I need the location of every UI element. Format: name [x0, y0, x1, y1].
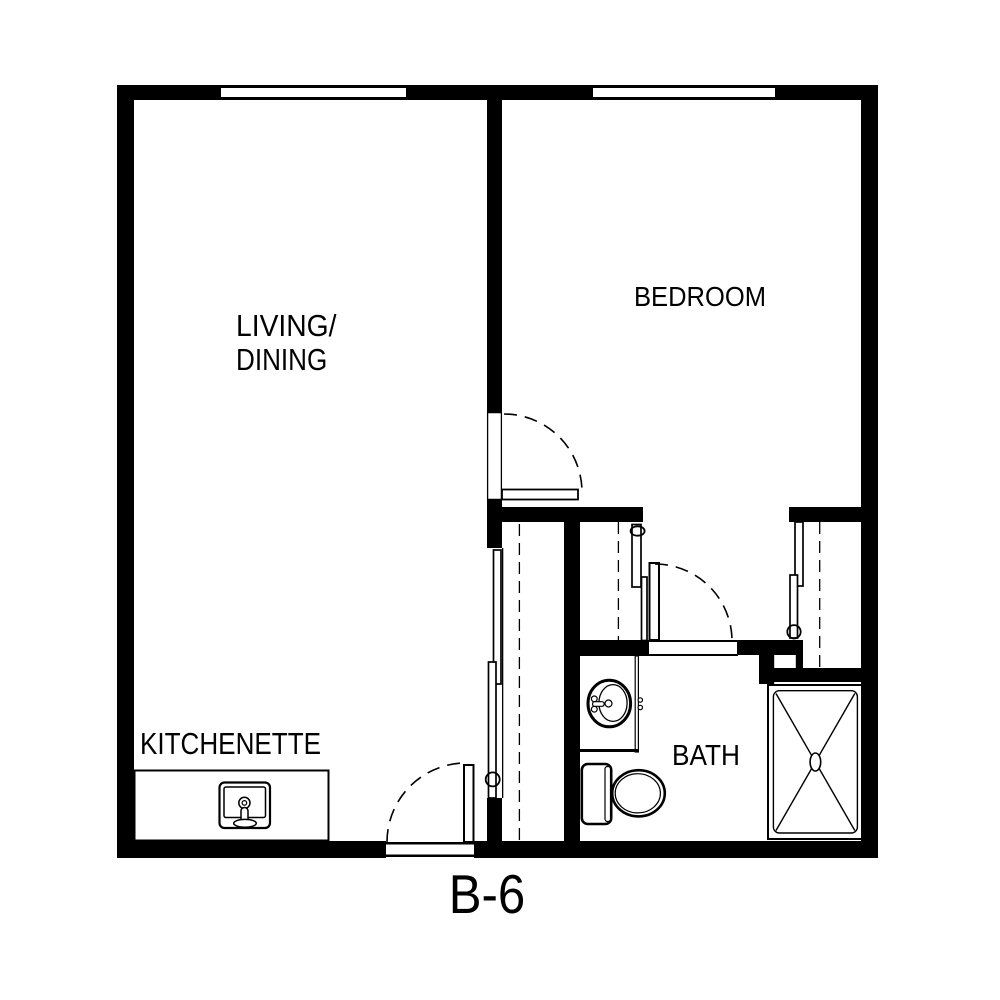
svg-text:KITCHENETTE: KITCHENETTE [140, 726, 321, 761]
svg-text:BATH: BATH [672, 740, 740, 772]
svg-text:LIVING/: LIVING/ [236, 308, 337, 343]
svg-text:B-6: B-6 [449, 863, 526, 925]
svg-text:BEDROOM: BEDROOM [634, 281, 766, 312]
svg-text:DINING: DINING [236, 342, 327, 377]
